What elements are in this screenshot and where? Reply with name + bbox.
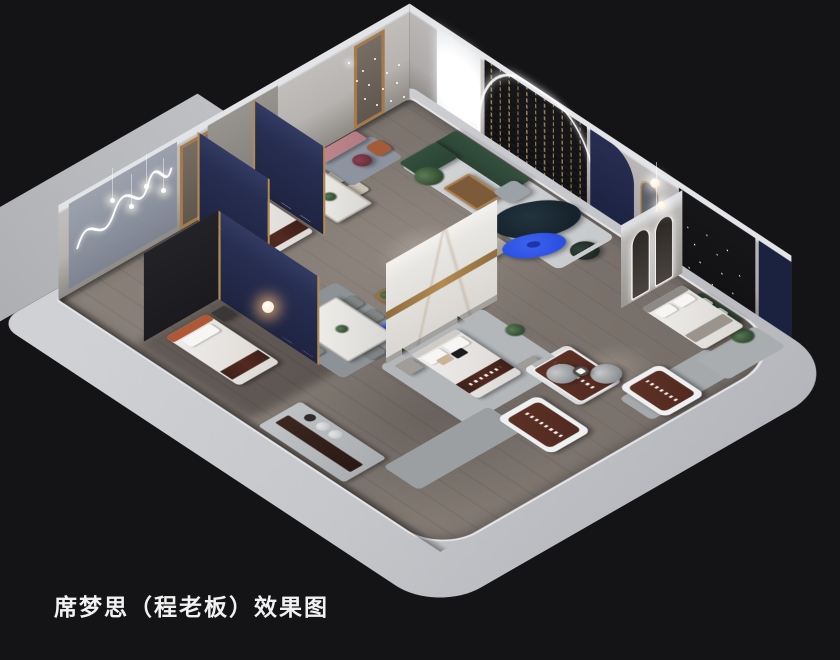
brand-label-marks (468, 366, 501, 385)
table-plant (333, 323, 351, 334)
floorplan-plane (59, 98, 792, 552)
navy-corner-panel (759, 240, 792, 344)
brand-label-band (525, 412, 563, 437)
isometric-scene (0, 0, 840, 660)
render-canvas: 席梦思（程老板）效果图 (0, 0, 840, 660)
glowing-arch-niche (631, 226, 650, 302)
brass-trim-band (386, 248, 497, 320)
bolster-cylinder (325, 428, 345, 440)
table-decor (525, 240, 541, 249)
glowing-arch-niche (655, 212, 674, 288)
wood-door-frame (354, 29, 385, 130)
dark-stool (302, 413, 319, 423)
brand-label-band (645, 380, 678, 401)
white-tray (575, 368, 586, 375)
